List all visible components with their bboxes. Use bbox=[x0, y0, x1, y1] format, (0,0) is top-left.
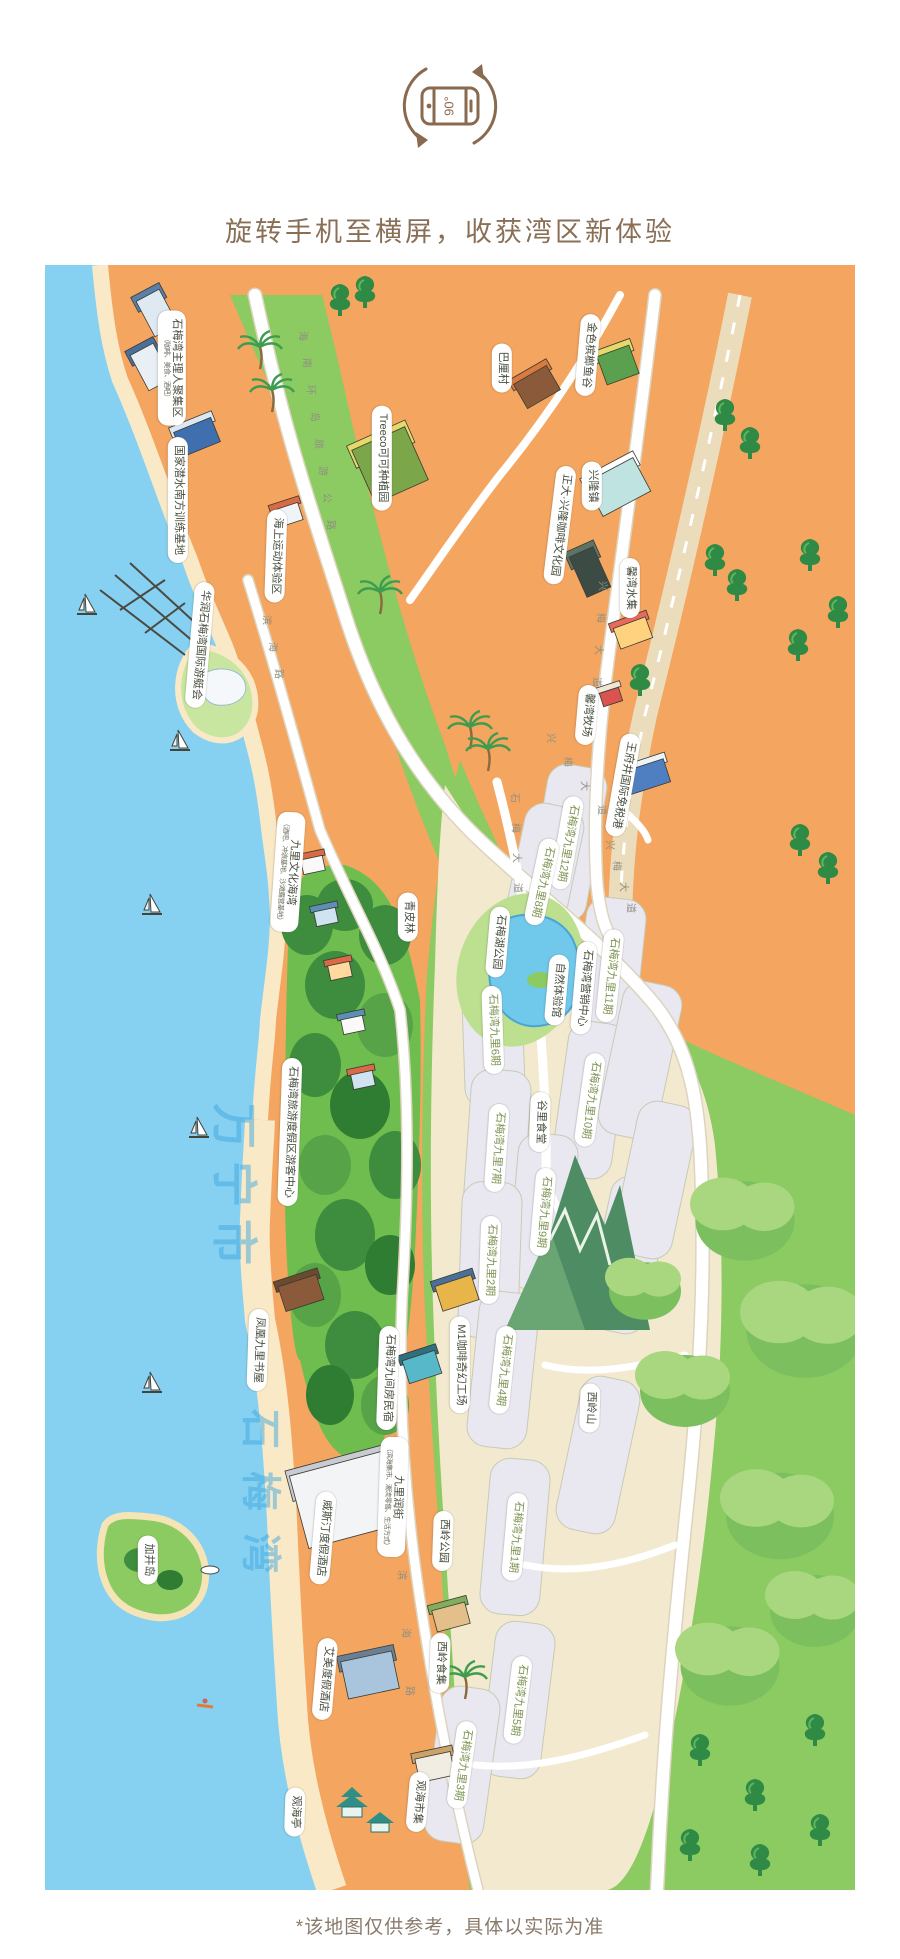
shimei-bay-illustrated-map: 石梅湾主理人聚集区（咖啡、美食、酒吧）国家潜水南方训练基地海上运动体验区华润石梅… bbox=[45, 265, 855, 1890]
map-disclaimer: *该地图仅供参考，具体以实际为准 bbox=[0, 1912, 900, 1939]
page-title: 旋转手机至横屏，收获湾区新体验 bbox=[0, 210, 900, 249]
rotate-phone-90-icon: 90° bbox=[392, 44, 508, 168]
map-terrain-illustration bbox=[45, 265, 855, 1890]
rotate-degrees-text: 90° bbox=[441, 96, 456, 116]
